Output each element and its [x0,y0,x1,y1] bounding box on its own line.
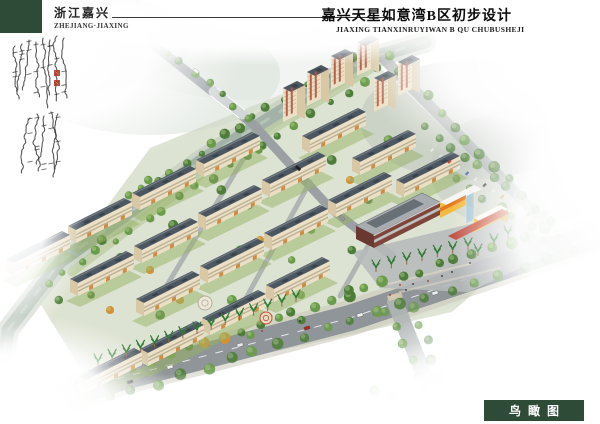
region-name-cn: 浙江嘉兴 [54,4,110,21]
tower-building [283,81,305,122]
view-label-text: 鸟瞰图 [502,402,566,419]
view-label-plate: 鸟瞰图 [484,400,584,421]
garden-feature [198,296,212,310]
project-title-cn: 嘉兴天星如意湾B区初步设计 [322,5,512,25]
calligraphy-inscription [2,34,80,184]
aerial-rendering [0,0,600,424]
brand-color-block [0,0,42,33]
region-name-en: ZHEJIANG·JIAXING [54,22,129,30]
garden-feature [260,312,272,324]
project-title-en: JIAXING TIANXINRUYIWAN B QU CHUBUSHEJI [336,25,524,34]
tower-building [307,65,329,106]
design-sheet: 浙江嘉兴 ZHEJIANG·JIAXING 嘉兴天星如意湾B区初步设计 JIAX… [0,0,600,424]
